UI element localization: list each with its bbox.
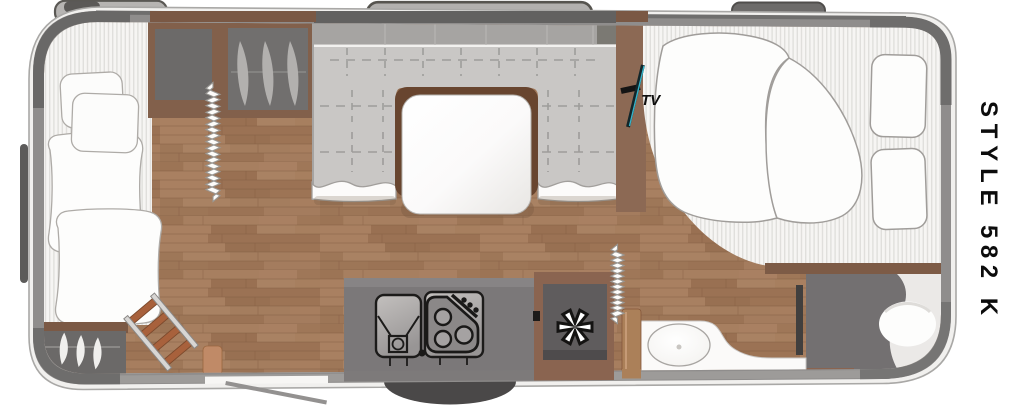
svg-text:STYLE: STYLE (975, 101, 1002, 212)
svg-text:582 K: 582 K (975, 225, 1002, 322)
svg-text:TV: TV (641, 92, 662, 109)
